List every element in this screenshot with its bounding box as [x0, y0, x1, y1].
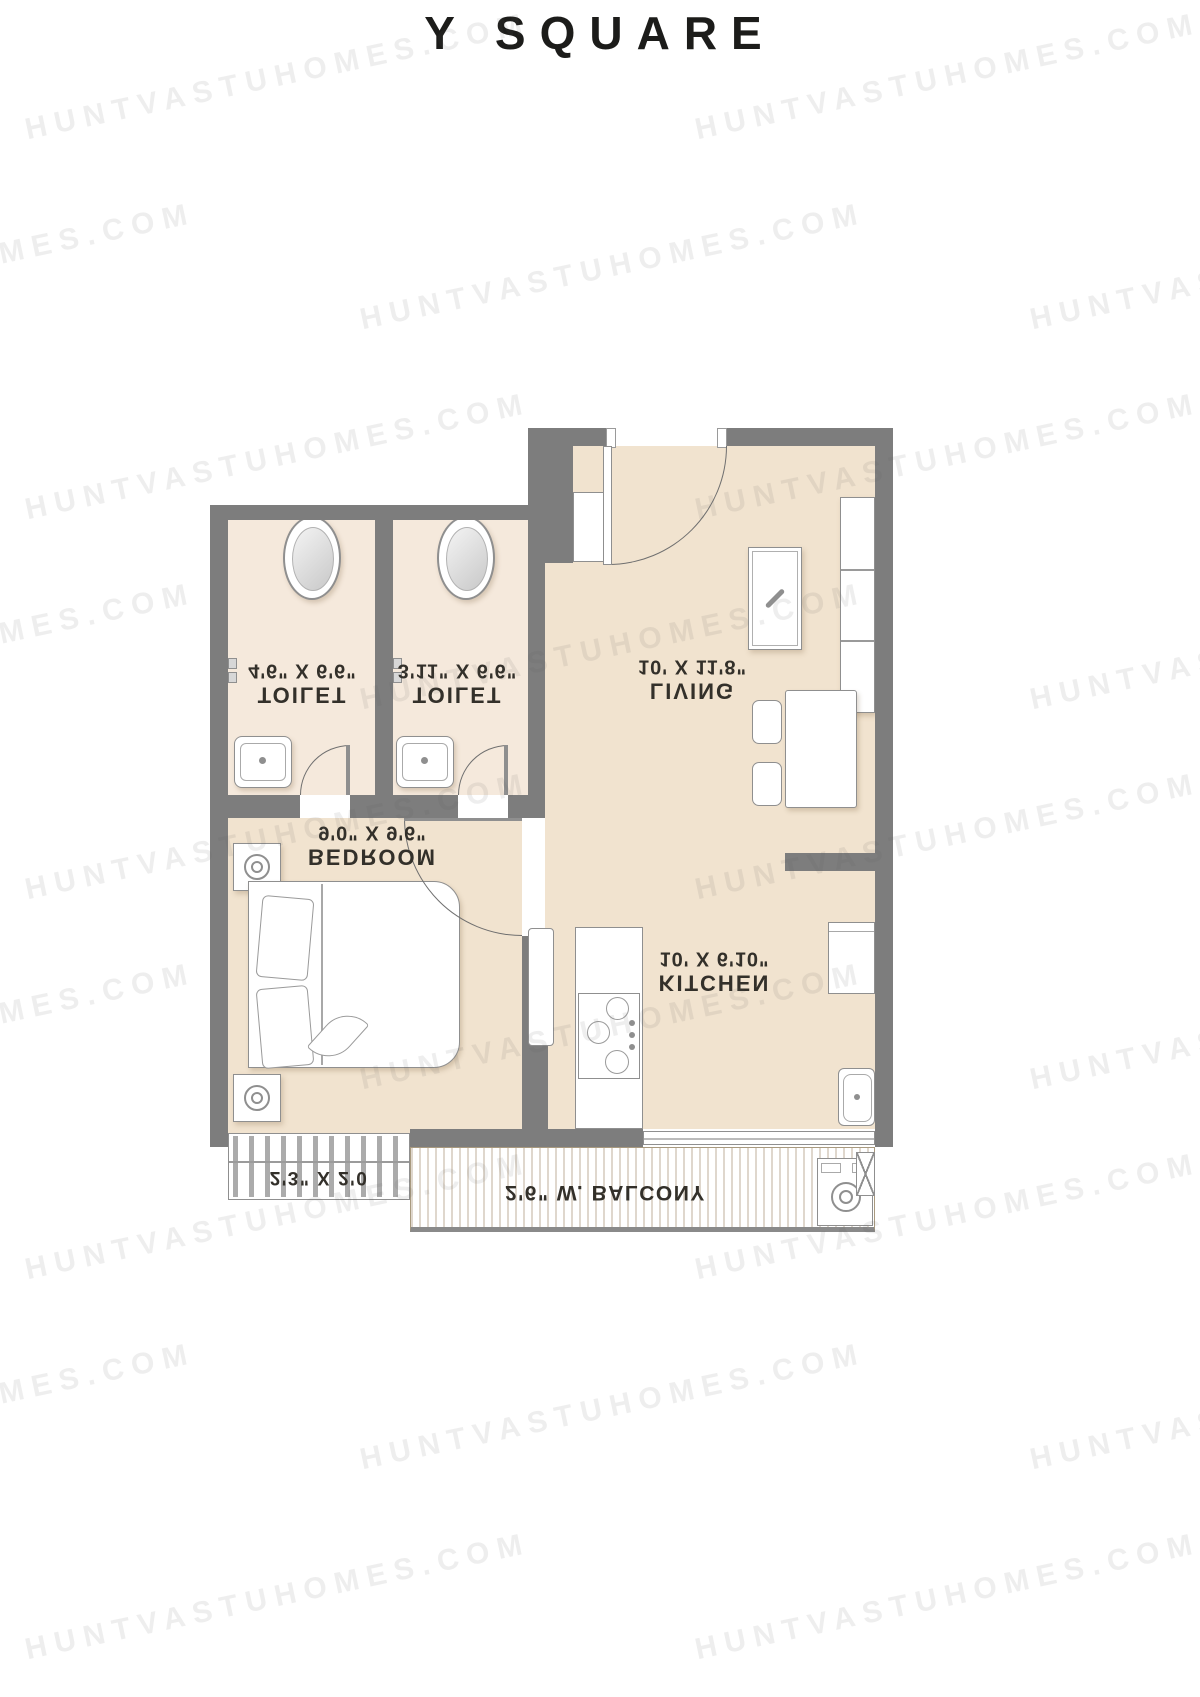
entrance-door-leaf — [603, 446, 612, 565]
room-name: TOILET — [385, 682, 530, 708]
watermark-text: HUNTVASTUHOMES.COM — [0, 1337, 198, 1477]
tall-cabinet — [528, 928, 554, 1046]
page-title: Y SQUARE — [0, 6, 1200, 60]
wall — [508, 795, 545, 818]
door-jamb — [606, 428, 616, 448]
toilet1-door-leaf — [346, 745, 350, 795]
wall — [210, 505, 545, 520]
refrigerator-icon — [828, 922, 875, 994]
wall — [727, 428, 893, 446]
gas-hob-icon — [578, 993, 640, 1079]
toilet2-door-leaf — [504, 745, 508, 795]
blanket-fold-icon — [307, 1004, 370, 1069]
watermark-text: HUNTVASTUHOMES.COM — [0, 577, 198, 717]
pillow-icon — [256, 895, 315, 981]
wall — [210, 505, 228, 1147]
room-name: TOILET — [230, 682, 375, 708]
room-name: BEDROOM — [270, 844, 475, 870]
pillow-icon — [256, 985, 315, 1069]
toilet1-label: TOILET 4'6" X 6'6" — [230, 658, 375, 708]
room-dims: 4'6" X 6'6" — [230, 658, 375, 682]
wall — [210, 795, 300, 818]
door-jamb — [717, 428, 727, 448]
watermark-text: HUNTVASTUHOMES.COM — [1027, 577, 1200, 717]
utility-shaft — [573, 492, 605, 562]
room-dims: 3'11" X 6'6" — [385, 658, 530, 682]
washbasin-icon — [396, 736, 454, 788]
bed-icon — [248, 881, 460, 1068]
watermark-text: HUNTVASTUHOMES.COM — [0, 957, 198, 1097]
sofa-icon — [840, 497, 875, 713]
room-name: KITCHEN — [612, 970, 817, 996]
ledge: 2'3" X 2'0 — [228, 1133, 410, 1200]
room-dims: 10' X 6'10" — [612, 946, 817, 970]
ledge-label: 2'3" X 2'0 — [229, 1166, 409, 1188]
wall — [410, 1129, 643, 1147]
wc-toilet-icon — [437, 516, 495, 600]
watermark-text: HUNTVASTUHOMES.COM — [1027, 197, 1200, 337]
living-label: LIVING 10' X 11'8" — [590, 654, 795, 704]
watermark-text: HUNTVASTUHOMES.COM — [0, 197, 198, 337]
wall — [545, 446, 573, 563]
dining-table-icon — [785, 690, 857, 808]
tv-unit-icon — [748, 547, 802, 650]
wall — [528, 428, 545, 818]
watermark-text: HUNTVASTUHOMES.COM — [22, 1527, 533, 1667]
nightstand-icon — [233, 1074, 281, 1122]
floor-plan: 2'3" X 2'0 — [210, 428, 893, 1238]
duct-icon — [856, 1152, 875, 1196]
watermark-text: HUNTVASTUHOMES.COM — [1027, 957, 1200, 1097]
balcony-label: 2'6" W. BALCONY — [493, 1180, 718, 1204]
kitchen-label: KITCHEN 10' X 6'10" — [612, 946, 817, 996]
watermark-text: HUNTVASTUHOMES.COM — [692, 1527, 1200, 1667]
page: Y SQUARE 2'3" X 2'0 — [0, 0, 1200, 1697]
wall — [785, 853, 875, 871]
kitchen-sink-icon — [838, 1068, 875, 1126]
wall — [350, 795, 458, 818]
washbasin-icon — [234, 736, 292, 788]
room-name: LIVING — [590, 678, 795, 704]
wall — [875, 428, 893, 1147]
watermark-text: HUNTVASTUHOMES.COM — [357, 197, 868, 337]
wc-toilet-icon — [283, 516, 341, 600]
room-dims: 9'0" X 9'6" — [270, 820, 475, 844]
dining-chair-icon — [752, 700, 782, 744]
watermark-text: HUNTVASTUHOMES.COM — [1027, 1337, 1200, 1477]
balcony-sliding-door — [643, 1131, 875, 1145]
bedroom-label: BEDROOM 9'0" X 9'6" — [270, 820, 475, 870]
dining-chair-icon — [752, 762, 782, 806]
toilet2-label: TOILET 3'11" X 6'6" — [385, 658, 530, 708]
watermark-text: HUNTVASTUHOMES.COM — [357, 1337, 868, 1477]
room-dims: 10' X 11'8" — [590, 654, 795, 678]
